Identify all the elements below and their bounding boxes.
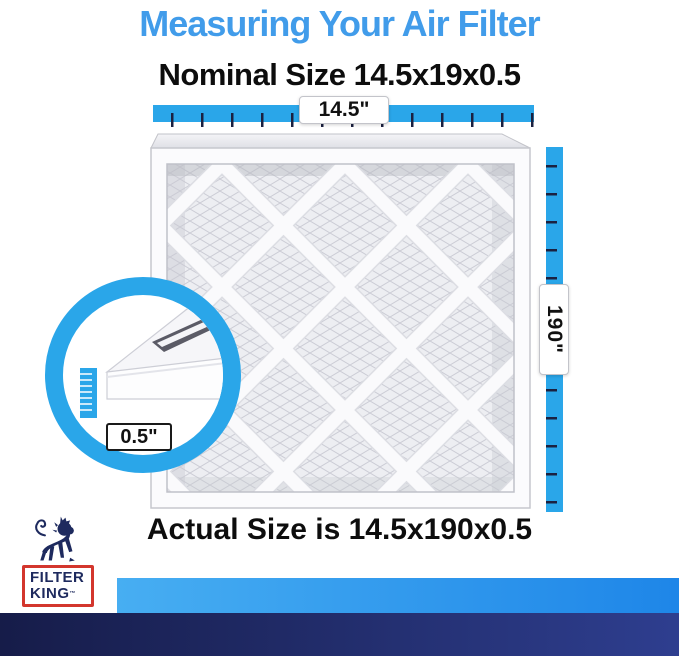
nominal-size-text: Nominal Size 14.5x19x0.5 <box>0 57 679 93</box>
lion-crown-icon <box>30 514 86 566</box>
page-title: Measuring Your Air Filter <box>0 3 679 45</box>
filter-king-wordmark: FILTER KING™ <box>22 565 94 607</box>
filter-king-logo: FILTER KING™ <box>18 512 118 612</box>
footer-navy-bar <box>0 613 679 656</box>
depth-zoom-inset <box>36 268 252 484</box>
width-measurement-label: 14.5" <box>299 96 389 124</box>
logo-line1: FILTER <box>30 570 91 586</box>
product-infographic: Measuring Your Air Filter Nominal Size 1… <box>0 0 679 656</box>
depth-measurement-label: 0.5" <box>106 423 172 451</box>
logo-line2: KING™ <box>30 586 91 602</box>
footer-lightblue-bar <box>117 578 679 614</box>
height-measurement-label: 190" <box>539 284 569 375</box>
filter-top-face <box>151 134 530 148</box>
trademark-symbol: ™ <box>70 591 77 597</box>
